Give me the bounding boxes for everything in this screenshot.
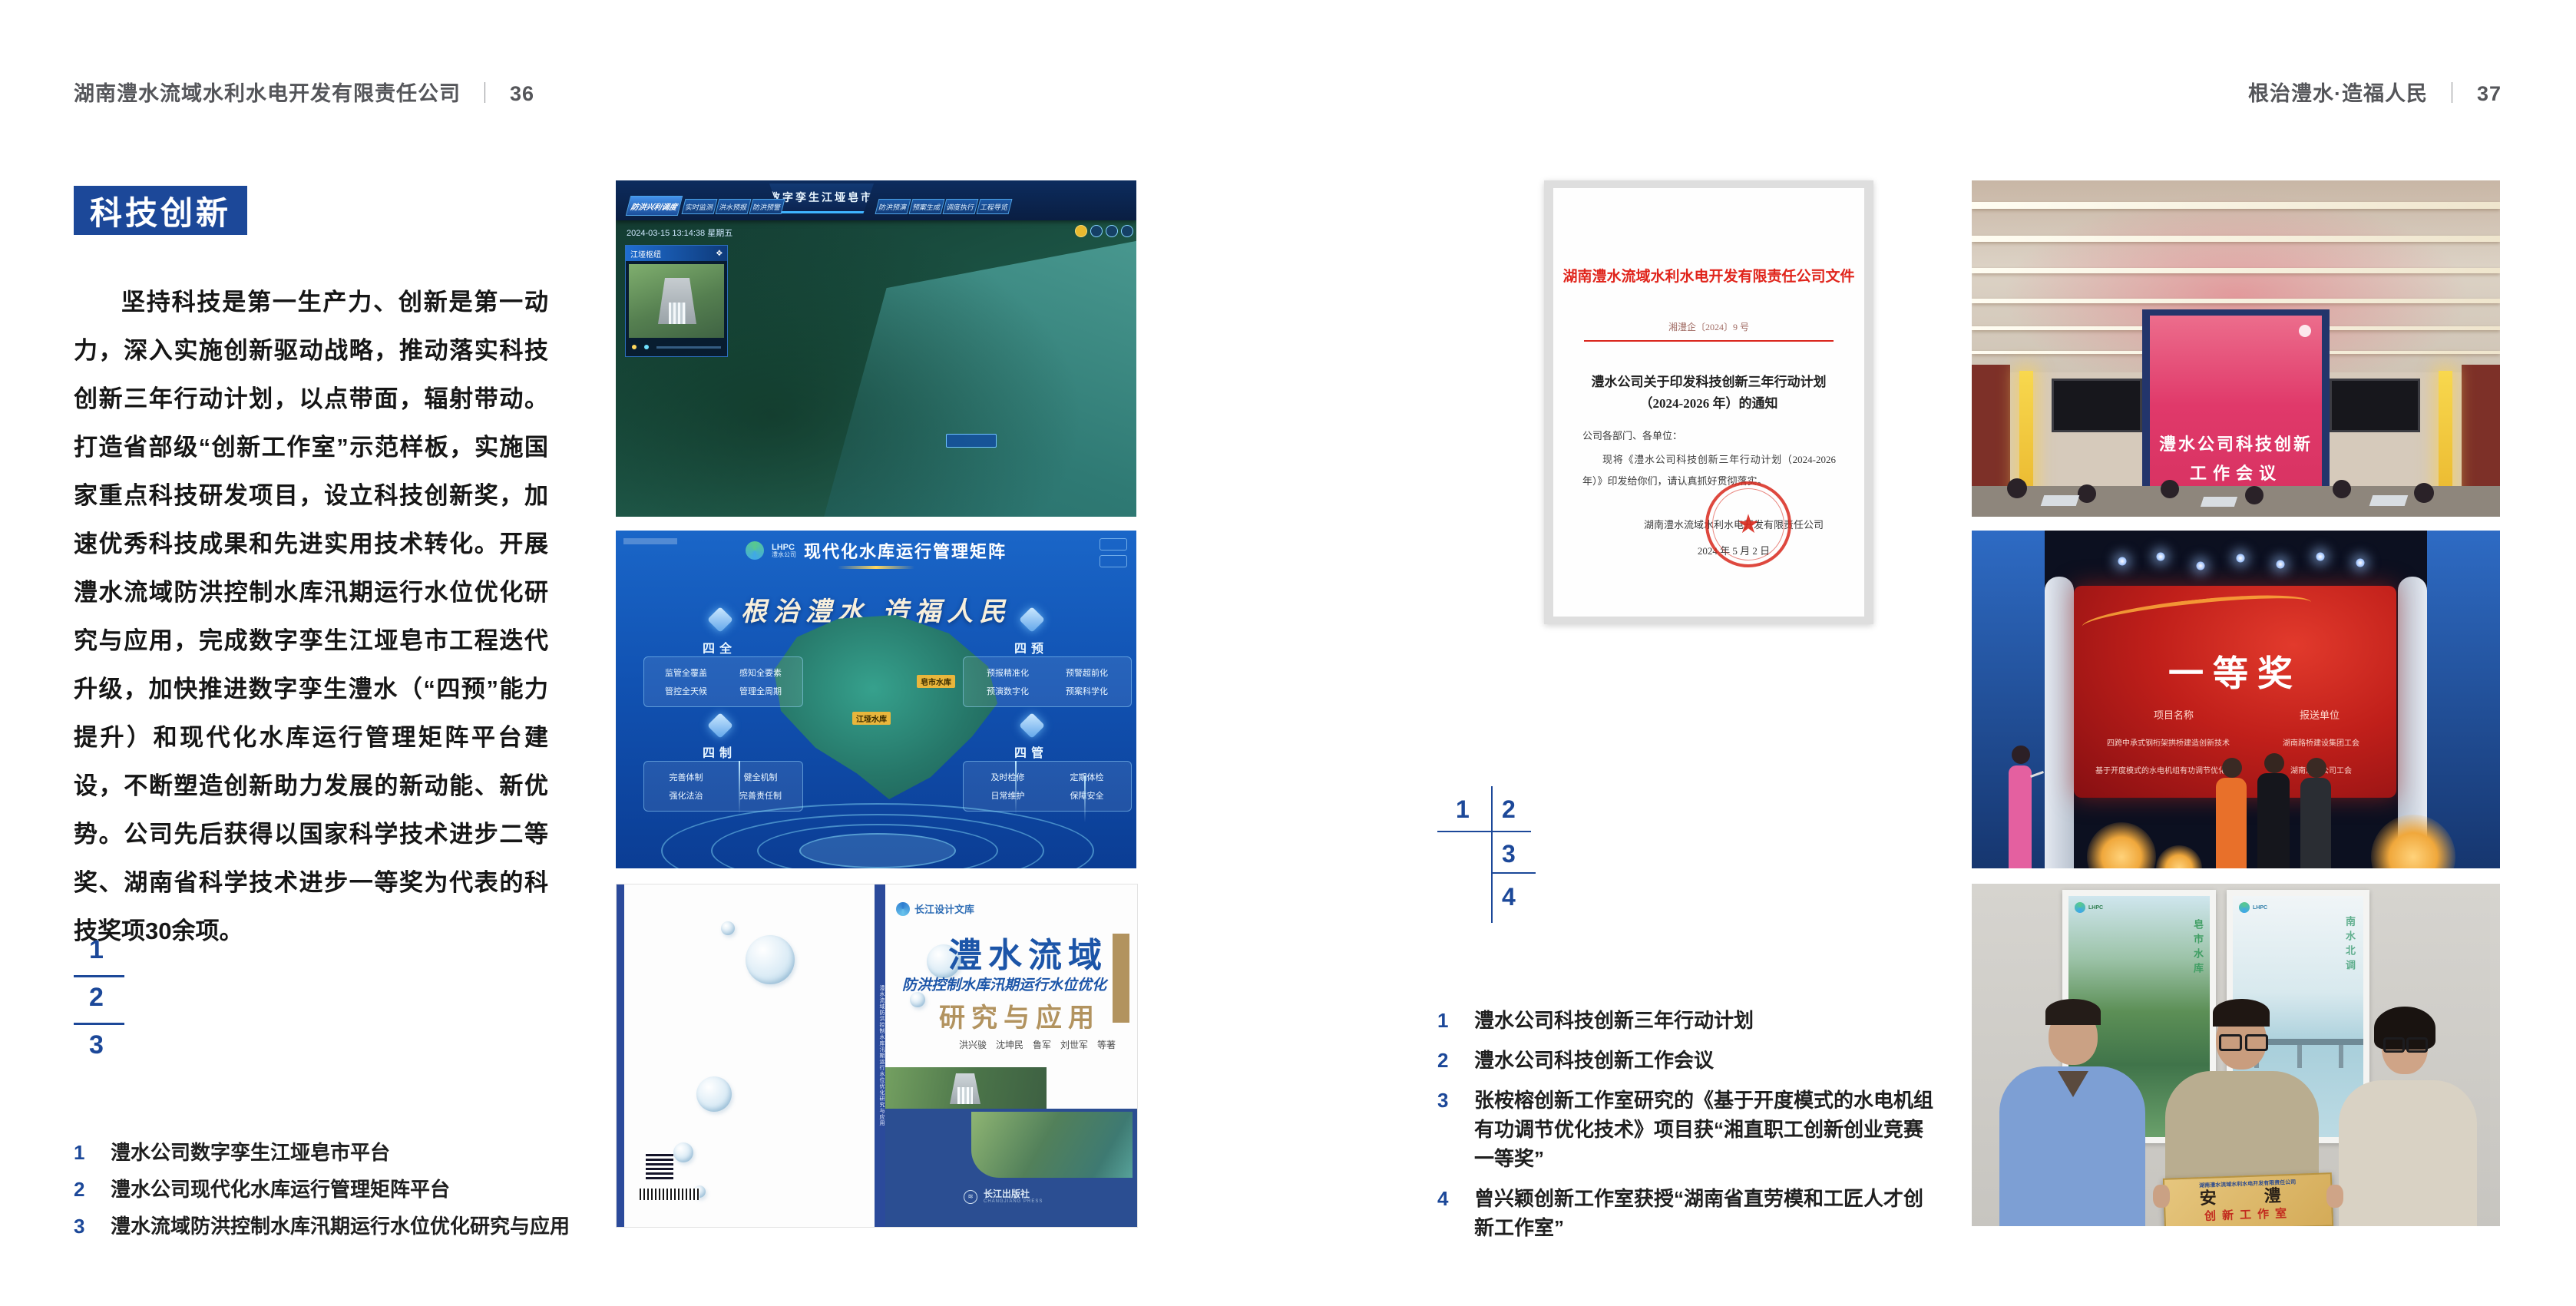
spillway: [957, 1087, 973, 1104]
book-authors: 洪兴骏 沈坤民 鲁军 刘世军 等著: [893, 1038, 1116, 1051]
screen-logo-icon: [2299, 325, 2311, 337]
hand-right: [2326, 1185, 2343, 1208]
document-red-rule: [1584, 340, 1834, 342]
gold-bar: [1113, 934, 1129, 1023]
move-icon: ✥: [716, 250, 723, 258]
matrix-item: 感知全要素: [729, 666, 792, 679]
caption-row: 3 张桉榕创新工作室研究的《基于开度模式的水电机组有功调节优化技术》项目获“湘直…: [1437, 1086, 1935, 1173]
audience-head: [2245, 486, 2264, 504]
audience-head: [2414, 483, 2434, 503]
tool-icon: [1090, 225, 1103, 237]
publisher-logo-icon: ≋: [964, 1190, 977, 1204]
figure-number-2: 2: [1502, 795, 1516, 824]
stage-pillar-left: [2045, 577, 2074, 868]
awardee-orange: [2216, 778, 2247, 868]
awardee-head: [2222, 758, 2242, 778]
screen-line1: 澧水公司科技创新: [2150, 431, 2322, 455]
tab-flood-forecast: 洪水预报: [716, 199, 752, 214]
legend-bar: [656, 346, 721, 349]
notice-title-line1: 澧水公司关于印发科技创新三年行动计划: [1553, 371, 1864, 390]
person-left-hair: [2045, 999, 2101, 1025]
group-name-siquan: 四全: [662, 638, 777, 656]
caption-text: 澧水流域防洪控制水库汛期运行水位优化研究与应用: [111, 1212, 570, 1241]
light-pillar: [1015, 761, 1017, 815]
photo-award-ceremony: 一等奖 项目名称 报送单位 四跨中承式钢桁架拱桥建造创新技术 湖南路桥建设集团工…: [1972, 531, 2500, 868]
bridge-pier: [2297, 1045, 2302, 1068]
caption-number: 2: [74, 1175, 92, 1204]
company-logo-icon: [746, 541, 764, 560]
caption-text: 澧水公司现代化水库运行管理矩阵平台: [111, 1175, 450, 1204]
poster-logo-icon: [2239, 902, 2250, 913]
awardee-suit: [2257, 773, 2290, 868]
figure-number-1: 1: [1456, 795, 1470, 824]
water-droplet: [910, 992, 925, 1007]
award-r1c2: 湖南路桥建设集团工会: [2267, 736, 2375, 748]
matrix-item: 管控全天候: [655, 685, 717, 697]
logo-name: 澧水公司: [772, 552, 796, 558]
legend-dot: [632, 345, 637, 349]
figure-book-cover: 澧水流域防洪控制水库汛期运行水位优化研究与应用 长江设计文库 澧水流域 防洪控制…: [616, 884, 1138, 1228]
poster-logo-text: LHPC: [2253, 905, 2267, 911]
document-salutation: 公司各部门、各单位：: [1582, 428, 1836, 442]
tool-icon: [1121, 225, 1133, 237]
map-label-jiangya: 江垭水库: [852, 712, 891, 725]
right-caption-list: 1 澧水公司科技创新三年行动计划 2 澧水公司科技创新工作会议 3 张桉榕创新工…: [1437, 1006, 1935, 1242]
host-head: [2012, 746, 2030, 764]
host-figure: [2009, 765, 2032, 868]
water-level-tag: [946, 434, 997, 448]
left-page-header: 湖南澧水流域水利水电开发有限责任公司｜36: [74, 77, 534, 107]
back-cover-edge: [617, 884, 624, 1227]
figure-digital-twin-platform: 数字孪生江垭皂市 防洪兴利调度 实时监测 洪水预报 防洪预警 防洪预演 预案生成…: [616, 180, 1136, 517]
spotlight: [2356, 558, 2365, 567]
matrix-item: 完善体制: [655, 771, 717, 783]
figure-number-divider: [74, 975, 124, 977]
zhi-icon: [707, 713, 733, 739]
wall-tv-right: [2330, 379, 2420, 432]
spotlight: [2316, 552, 2325, 561]
audience-head: [2333, 480, 2351, 498]
audience-head: [2078, 484, 2096, 503]
stage-glow: [2156, 845, 2202, 868]
book-subtitle: 防洪控制水库汛期运行水位优化: [893, 974, 1116, 994]
group-name-sizhi: 四制: [662, 742, 777, 761]
side-panel: 江垭枢纽✥: [625, 245, 728, 357]
caption-text: 澧水公司数字孪生江垭皂市平台: [111, 1138, 390, 1167]
header-divider: [838, 566, 914, 569]
notice-title-line2: （2024-2026 年）的通知: [1553, 392, 1864, 412]
spotlight: [2156, 552, 2165, 561]
water-droplet: [696, 1076, 732, 1112]
poster-logo: LHPC: [2239, 902, 2267, 913]
group-panel-siguan: 及时检修 定期体检 日常维护 保障安全: [963, 761, 1132, 812]
poster-right-label: 南水北调: [2343, 916, 2357, 974]
group-panel-siyu: 预报精准化 预警超前化 预演数字化 预案科学化: [963, 656, 1132, 707]
light-strip: [1972, 236, 2500, 242]
matrix-item: 预报精准化: [974, 666, 1041, 679]
photo-innovation-studio-plaque: LHPC 皂市水库 LHPC 南水北调: [1972, 884, 2500, 1226]
figure-number-divider: [74, 1023, 124, 1025]
caption-text: 澧水公司科技创新工作会议: [1474, 1046, 1714, 1075]
caption-row: 3 澧水流域防洪控制水库汛期运行水位优化研究与应用: [74, 1212, 570, 1241]
person-right-body: [2339, 1080, 2477, 1226]
figure-number-1: 1: [89, 935, 104, 965]
document-number: 湘澧企〔2024〕9 号: [1553, 320, 1864, 333]
publisher-name: 长江出版社: [984, 1189, 1043, 1199]
caption-number: 3: [74, 1212, 92, 1241]
document-photo: 湖南澧水流域水利水电开发有限责任公司文件 湘澧企〔2024〕9 号 澧水公司关于…: [1544, 180, 1873, 624]
panel-legend: [626, 341, 727, 356]
caption-number: 1: [74, 1138, 92, 1167]
figure-number-vline: [1491, 786, 1493, 923]
tool-icon: [1075, 225, 1087, 237]
series-logo-icon: [896, 902, 910, 916]
tab-realtime-monitor: 实时监测: [682, 199, 718, 214]
caption-text: 张桉榕创新工作室研究的《基于开度模式的水电机组有功调节优化技术》项目获“湘直职工…: [1474, 1086, 1935, 1173]
audience-head: [2007, 478, 2027, 498]
glasses-right-lens: [2406, 1037, 2428, 1053]
matrix-header: LHPC 澧水公司 现代化水库运行管理矩阵: [616, 538, 1136, 563]
audience-head: [2161, 480, 2179, 498]
figure-number-3: 3: [1502, 840, 1516, 868]
tab-project-tour: 工程导览: [977, 199, 1013, 214]
left-page-number: 36: [510, 82, 534, 105]
qr-code: [646, 1152, 673, 1179]
series-name: 长江设计文库: [914, 901, 974, 916]
book-subtitle2: 研究与应用: [924, 997, 1100, 1034]
publisher-name-en: CHANGJIANG PRESS: [984, 1199, 1043, 1205]
award-col2: 报送单位: [2266, 707, 2373, 722]
dam-thumbnail: [629, 264, 724, 338]
tab-dispatch-execution: 调度执行: [943, 199, 979, 214]
matrix-item: 定期体检: [1053, 771, 1120, 783]
figure-number-2: 2: [89, 983, 104, 1013]
spotlight: [2236, 554, 2245, 563]
section-badge: 科技创新: [74, 186, 247, 235]
light-strip: [1972, 202, 2500, 209]
body-paragraph: 坚持科技是第一生产力、创新是第一动力，深入实施创新驱动战略，推动落实科技创新三年…: [74, 278, 548, 955]
brochure-spread: 湖南澧水流域水利水电开发有限责任公司｜36 根治澧水·造福人民｜37 科技创新 …: [0, 0, 2576, 1306]
stage-side-right: [2427, 531, 2500, 868]
document-letterhead: 湖南澧水流域水利水电开发有限责任公司文件: [1553, 265, 1864, 286]
side-panel-header: 江垭枢纽✥: [626, 246, 727, 261]
figure-number-hline: [1491, 872, 1536, 874]
matrix-item: 日常维护: [974, 789, 1041, 802]
group-panel-siquan: 监管全覆盖 感知全要素 管控全天候 管理全周期: [643, 656, 803, 707]
figure-number-3: 3: [89, 1030, 104, 1060]
screen-swoosh: [2081, 587, 2313, 641]
light-strip: [1972, 299, 2500, 303]
matrix-item: 管理全周期: [729, 685, 792, 697]
barcode: [640, 1189, 699, 1200]
book-spine: 澧水流域防洪控制水库汛期运行水位优化研究与应用: [875, 884, 885, 1227]
tool-icon: [1106, 225, 1118, 237]
right-header-separator: ｜: [2442, 82, 2463, 105]
water-droplet: [746, 935, 795, 984]
map-label-zaoshi: 皂市水库: [917, 675, 955, 688]
caption-number: 4: [1437, 1184, 1456, 1242]
tab-flood-dispatch: 防洪兴利调度: [626, 196, 683, 216]
water-droplet: [721, 921, 735, 935]
dam-photo-strip: [885, 1067, 1047, 1109]
ripple-core: [799, 833, 956, 868]
company-seal: ★: [1705, 481, 1791, 567]
matrix-item: 监管全覆盖: [655, 666, 717, 679]
poster-logo-icon: [2075, 902, 2085, 913]
matrix-item: 保障安全: [1053, 789, 1120, 802]
matrix-item: 及时检修: [974, 771, 1041, 783]
laptop: [2369, 495, 2409, 506]
caption-row: 1 澧水公司科技创新三年行动计划: [1437, 1006, 1935, 1035]
series-logo: 长江设计文库: [896, 901, 974, 916]
laptop: [2041, 495, 2080, 506]
spotlight: [2196, 561, 2205, 570]
left-header-separator: ｜: [475, 82, 496, 105]
caption-row: 2 澧水公司现代化水库运行管理矩阵平台: [74, 1175, 450, 1204]
dam-photo-inset: [971, 1112, 1133, 1178]
laptop: [2201, 497, 2237, 507]
document-body: 现将《澧水公司科技创新三年行动计划（2024-2026 年）》印发给你们，请认真…: [1582, 449, 1836, 492]
award-title: 一等奖: [2074, 646, 2396, 696]
group-name-siguan: 四管: [974, 742, 1089, 761]
book-title: 澧水流域: [947, 927, 1108, 977]
figure-number-4: 4: [1502, 883, 1516, 911]
wall-tv-left: [2052, 379, 2142, 432]
panel-title: 江垭枢纽: [630, 248, 661, 260]
group-panel-sizhi: 完善体制 健全机制 强化法治 完善责任制: [643, 761, 803, 812]
right-header-title: 根治澧水·造福人民: [2248, 82, 2428, 105]
poster-left-label: 皂市水库: [2191, 919, 2205, 977]
tab-flood-warning: 防洪预警: [749, 199, 785, 214]
hand-left: [2153, 1185, 2170, 1208]
stage-glow: [2087, 822, 2156, 868]
light-pillar: [739, 761, 740, 815]
caption-row: 1 澧水公司数字孪生江垭皂市平台: [74, 1138, 390, 1167]
bridge-pier: [2339, 1045, 2343, 1068]
caption-row: 4 曾兴颖创新工作室获授“湖南省直劳模和工匠人才创新工作室”: [1437, 1184, 1935, 1242]
caption-number: 1: [1437, 1006, 1456, 1035]
seal-inner-ring: [1712, 488, 1784, 560]
light-strip: [1972, 268, 2500, 273]
screen-line2: 工作会议: [2150, 460, 2322, 484]
figure-matrix-platform: LHPC 澧水公司 现代化水库运行管理矩阵 根治澧水 造福人民 皂市水库 江垭水…: [616, 531, 1136, 868]
glasses-left-lens: [2219, 1034, 2242, 1051]
spotlight: [2276, 560, 2285, 569]
right-page-header: 根治澧水·造福人民｜37: [2248, 77, 2502, 107]
tab-flood-rehearsal: 防洪预演: [875, 199, 911, 214]
caption-row: 2 澧水公司科技创新工作会议: [1437, 1046, 1935, 1075]
matrix-item: 预警超前化: [1053, 666, 1120, 679]
guan-icon: [1019, 713, 1045, 739]
water-droplet: [673, 1142, 693, 1162]
spotlight: [2118, 557, 2127, 566]
legend-dot: [644, 345, 649, 349]
caption-number: 2: [1437, 1046, 1456, 1075]
left-header-title: 湖南澧水流域水利水电开发有限责任公司: [74, 82, 461, 105]
tab-plan-generation: 预案生成: [909, 199, 945, 214]
plaque: 湖南澧水流域水利水电开发有限责任公司 安 澧 创新工作室: [2163, 1172, 2333, 1226]
person-center-hair: [2213, 999, 2270, 1027]
dashboard-timestamp: 2024-03-15 13:14:38 星期五: [627, 226, 732, 239]
figure-number-hline: [1437, 831, 1531, 832]
awardee-dark: [2300, 778, 2331, 868]
award-col1: 项目名称: [2120, 707, 2227, 722]
caption-text: 澧水公司科技创新三年行动计划: [1474, 1006, 1754, 1035]
poster-logo-text: LHPC: [2088, 905, 2103, 911]
glasses-left-lens: [2383, 1037, 2405, 1053]
matrix-title: 现代化水库运行管理矩阵: [804, 538, 1007, 563]
publisher-logo: ≋ 长江出版社 CHANGJIANG PRESS: [964, 1189, 1043, 1205]
caption-number: 3: [1437, 1086, 1456, 1173]
award-r1c1: 四跨中承式钢桁架拱桥建造创新技术: [2080, 736, 2257, 748]
photo-innovation-meeting: 澧水公司科技创新 工作会议: [1972, 180, 2500, 517]
matrix-item: 预演数字化: [974, 685, 1041, 697]
matrix-item: 强化法治: [655, 789, 717, 802]
right-page-number: 37: [2477, 82, 2502, 105]
caption-text: 曾兴颖创新工作室获授“湖南省直劳模和工匠人才创新工作室”: [1474, 1184, 1935, 1242]
light-pillar: [1084, 776, 1086, 822]
spillway: [669, 303, 686, 324]
matrix-item: 预案科学化: [1053, 685, 1120, 697]
awardee-head: [2306, 758, 2326, 778]
logo-abbr: LHPC: [772, 544, 796, 552]
document-sheet: 湖南澧水流域水利水电开发有限责任公司文件 湘澧企〔2024〕9 号 澧水公司关于…: [1553, 188, 1864, 617]
awardee-head: [2264, 753, 2284, 773]
group-name-siyu: 四预: [974, 638, 1089, 656]
poster-logo: LHPC: [2075, 902, 2103, 913]
glasses-right-lens: [2245, 1034, 2268, 1051]
